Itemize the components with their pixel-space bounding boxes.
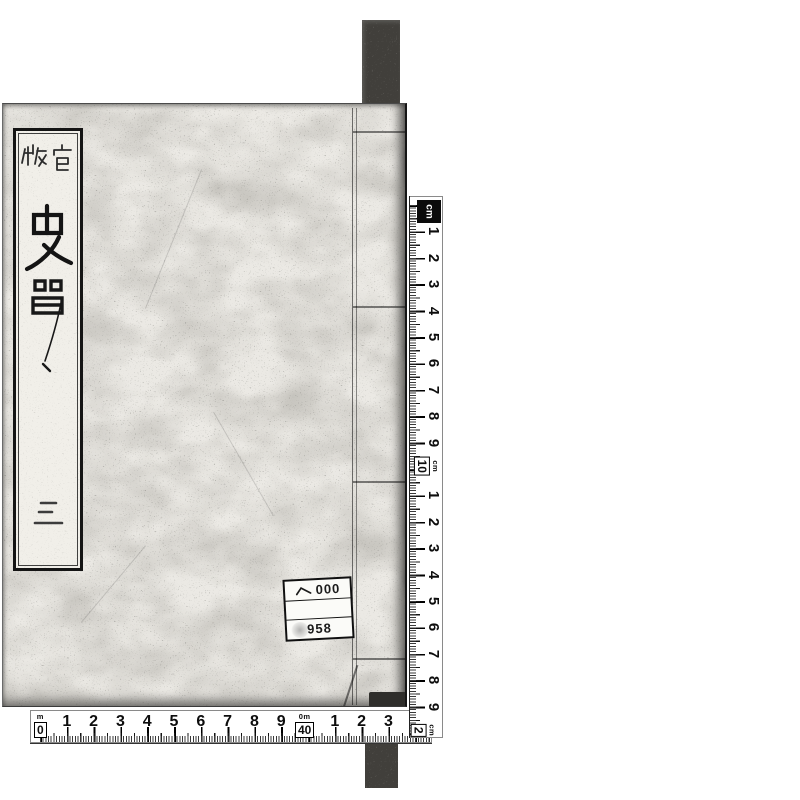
bottom-ruler-40cm-mark: 0m 40 xyxy=(295,713,314,738)
sticker-row3-number: 958 xyxy=(307,621,332,637)
ruler-number: 3 xyxy=(424,274,442,294)
ruler-number: 8 xyxy=(424,670,442,690)
right-ruler-10cm-mark: cm 10 xyxy=(417,454,436,479)
ruler-number: 3 xyxy=(377,713,399,731)
ruler-number: 1 xyxy=(56,713,78,731)
ruler-number: 5 xyxy=(424,327,442,347)
dark-backing-strip-bottom xyxy=(365,740,398,788)
binding-stitch xyxy=(353,658,407,660)
ruler-number: 5 xyxy=(424,591,442,611)
ruler-number: 7 xyxy=(424,380,442,400)
ruler-number: 4 xyxy=(424,301,442,321)
title-slip xyxy=(13,128,83,571)
ruler-number: 2 xyxy=(83,713,105,731)
binding-stitch xyxy=(353,131,407,133)
ruler-number: 9 xyxy=(424,697,442,717)
ruler-number: 6 xyxy=(424,353,442,373)
title-char-ki xyxy=(33,281,62,371)
ruler-number: 4 xyxy=(424,565,442,585)
ruler-number: 1 xyxy=(424,221,442,241)
binding-stitch xyxy=(353,481,407,483)
title-char-shi xyxy=(27,206,71,269)
ruler-number: 9 xyxy=(270,713,292,731)
binding-stitch xyxy=(353,306,407,308)
scanned-book-photo: 000 958 cm 123456789123456789 cm 10 cm xyxy=(0,0,800,800)
cover-crease xyxy=(213,412,274,516)
title-calligraphy xyxy=(16,131,80,568)
ruler-number: 1 xyxy=(424,485,442,505)
sticker-row-3: 958 xyxy=(287,617,353,640)
ruler-cm-logo: cm xyxy=(417,200,441,223)
ruler-number: 2 xyxy=(351,713,373,731)
scale-ruler-vertical: cm 123456789123456789 cm 10 cm 2 xyxy=(410,196,443,738)
ruler-number: 3 xyxy=(109,713,131,731)
dark-backing-strip-top xyxy=(362,20,400,110)
cover-crease xyxy=(145,169,202,308)
ruler-number: 2 xyxy=(424,248,442,268)
ruler-number: 8 xyxy=(424,406,442,426)
ruler-number: 2 xyxy=(424,512,442,532)
ruler-number: 3 xyxy=(424,538,442,558)
ruler-number: 6 xyxy=(190,713,212,731)
bottom-ruler-0-mark: m 0 xyxy=(34,713,47,738)
ruler-number: 1 xyxy=(324,713,346,731)
scale-ruler-horizontal: m 0 123456789123 0m 40 xyxy=(30,710,432,743)
ruler-number: 7 xyxy=(424,644,442,664)
katakana-he-glyph xyxy=(294,583,312,597)
ruler-number: 6 xyxy=(424,617,442,637)
volume-char-san xyxy=(35,503,62,523)
ruler-number: 4 xyxy=(136,713,158,731)
cover-crease xyxy=(81,545,146,622)
ruler-number: 8 xyxy=(243,713,265,731)
book-cover: 000 958 xyxy=(2,103,407,707)
right-ruler-20cm-mark: cm 2 xyxy=(417,718,430,743)
sticker-row1-number: 000 xyxy=(315,581,340,597)
ruler-number: 7 xyxy=(217,713,239,731)
ruler-number: 5 xyxy=(163,713,185,731)
ruler-number: 9 xyxy=(424,433,442,453)
call-number-sticker: 000 958 xyxy=(282,576,354,642)
imprint-hanpan-glyphs xyxy=(22,145,71,170)
bottom-right-corner-shadow xyxy=(369,692,407,707)
